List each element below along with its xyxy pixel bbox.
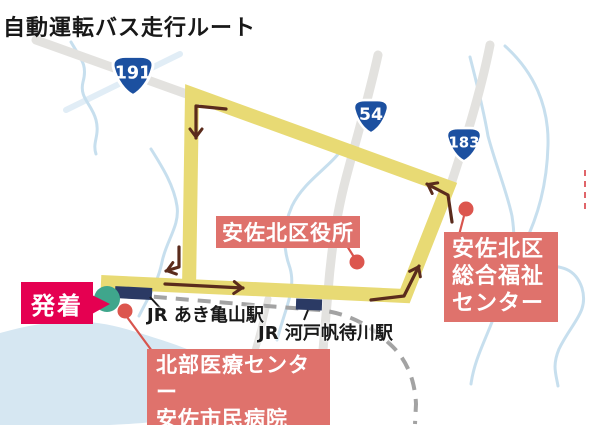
hospital-line: 安佐市民病院: [156, 406, 330, 425]
hospital-line: 北部医療センター: [156, 352, 330, 406]
route-shield-number: 191: [115, 64, 152, 84]
welfare-center-callout: 安佐北区 総合福祉 センター: [444, 232, 558, 322]
welfare-center-line: 安佐北区: [452, 236, 558, 263]
page-title: 自動運転バス走行ルート: [3, 10, 256, 42]
welfare-center-line: センター: [452, 290, 558, 317]
station-label-akikameyama: JR あき亀山駅: [147, 301, 264, 327]
route-shield-number: 183: [448, 134, 479, 152]
route-shield-number: 54: [359, 105, 383, 125]
depart-arrive-label: 発着: [31, 286, 83, 321]
hospital-callout: 北部医療センター 安佐市民病院: [147, 349, 330, 425]
welfare-center-line: 総合福祉: [452, 263, 558, 290]
station-marker-kodohomachigawa: [296, 299, 322, 320]
arrow-left-bottom-left: [166, 247, 179, 271]
route-shield-183: 183: [447, 128, 481, 161]
bus-route-map: 191 54 183 自動運転バス走行ルート 発着 安佐北区役所 安佐北区 総合…: [0, 0, 600, 425]
depart-arrive-badge: 発着: [21, 282, 93, 324]
bus-route-line: [101, 94, 448, 296]
route-shield-191: 191: [113, 56, 153, 95]
ward-office-callout: 安佐北区役所: [216, 216, 360, 248]
station-label-kodohomachigawa: JR 河戸帆待川駅: [258, 319, 393, 345]
ward-office-label: 安佐北区役所: [222, 217, 354, 247]
welfare-center-dot-icon: [459, 202, 474, 217]
hospital-dot-icon: [118, 304, 133, 319]
ward-office-dot-icon: [350, 255, 365, 270]
